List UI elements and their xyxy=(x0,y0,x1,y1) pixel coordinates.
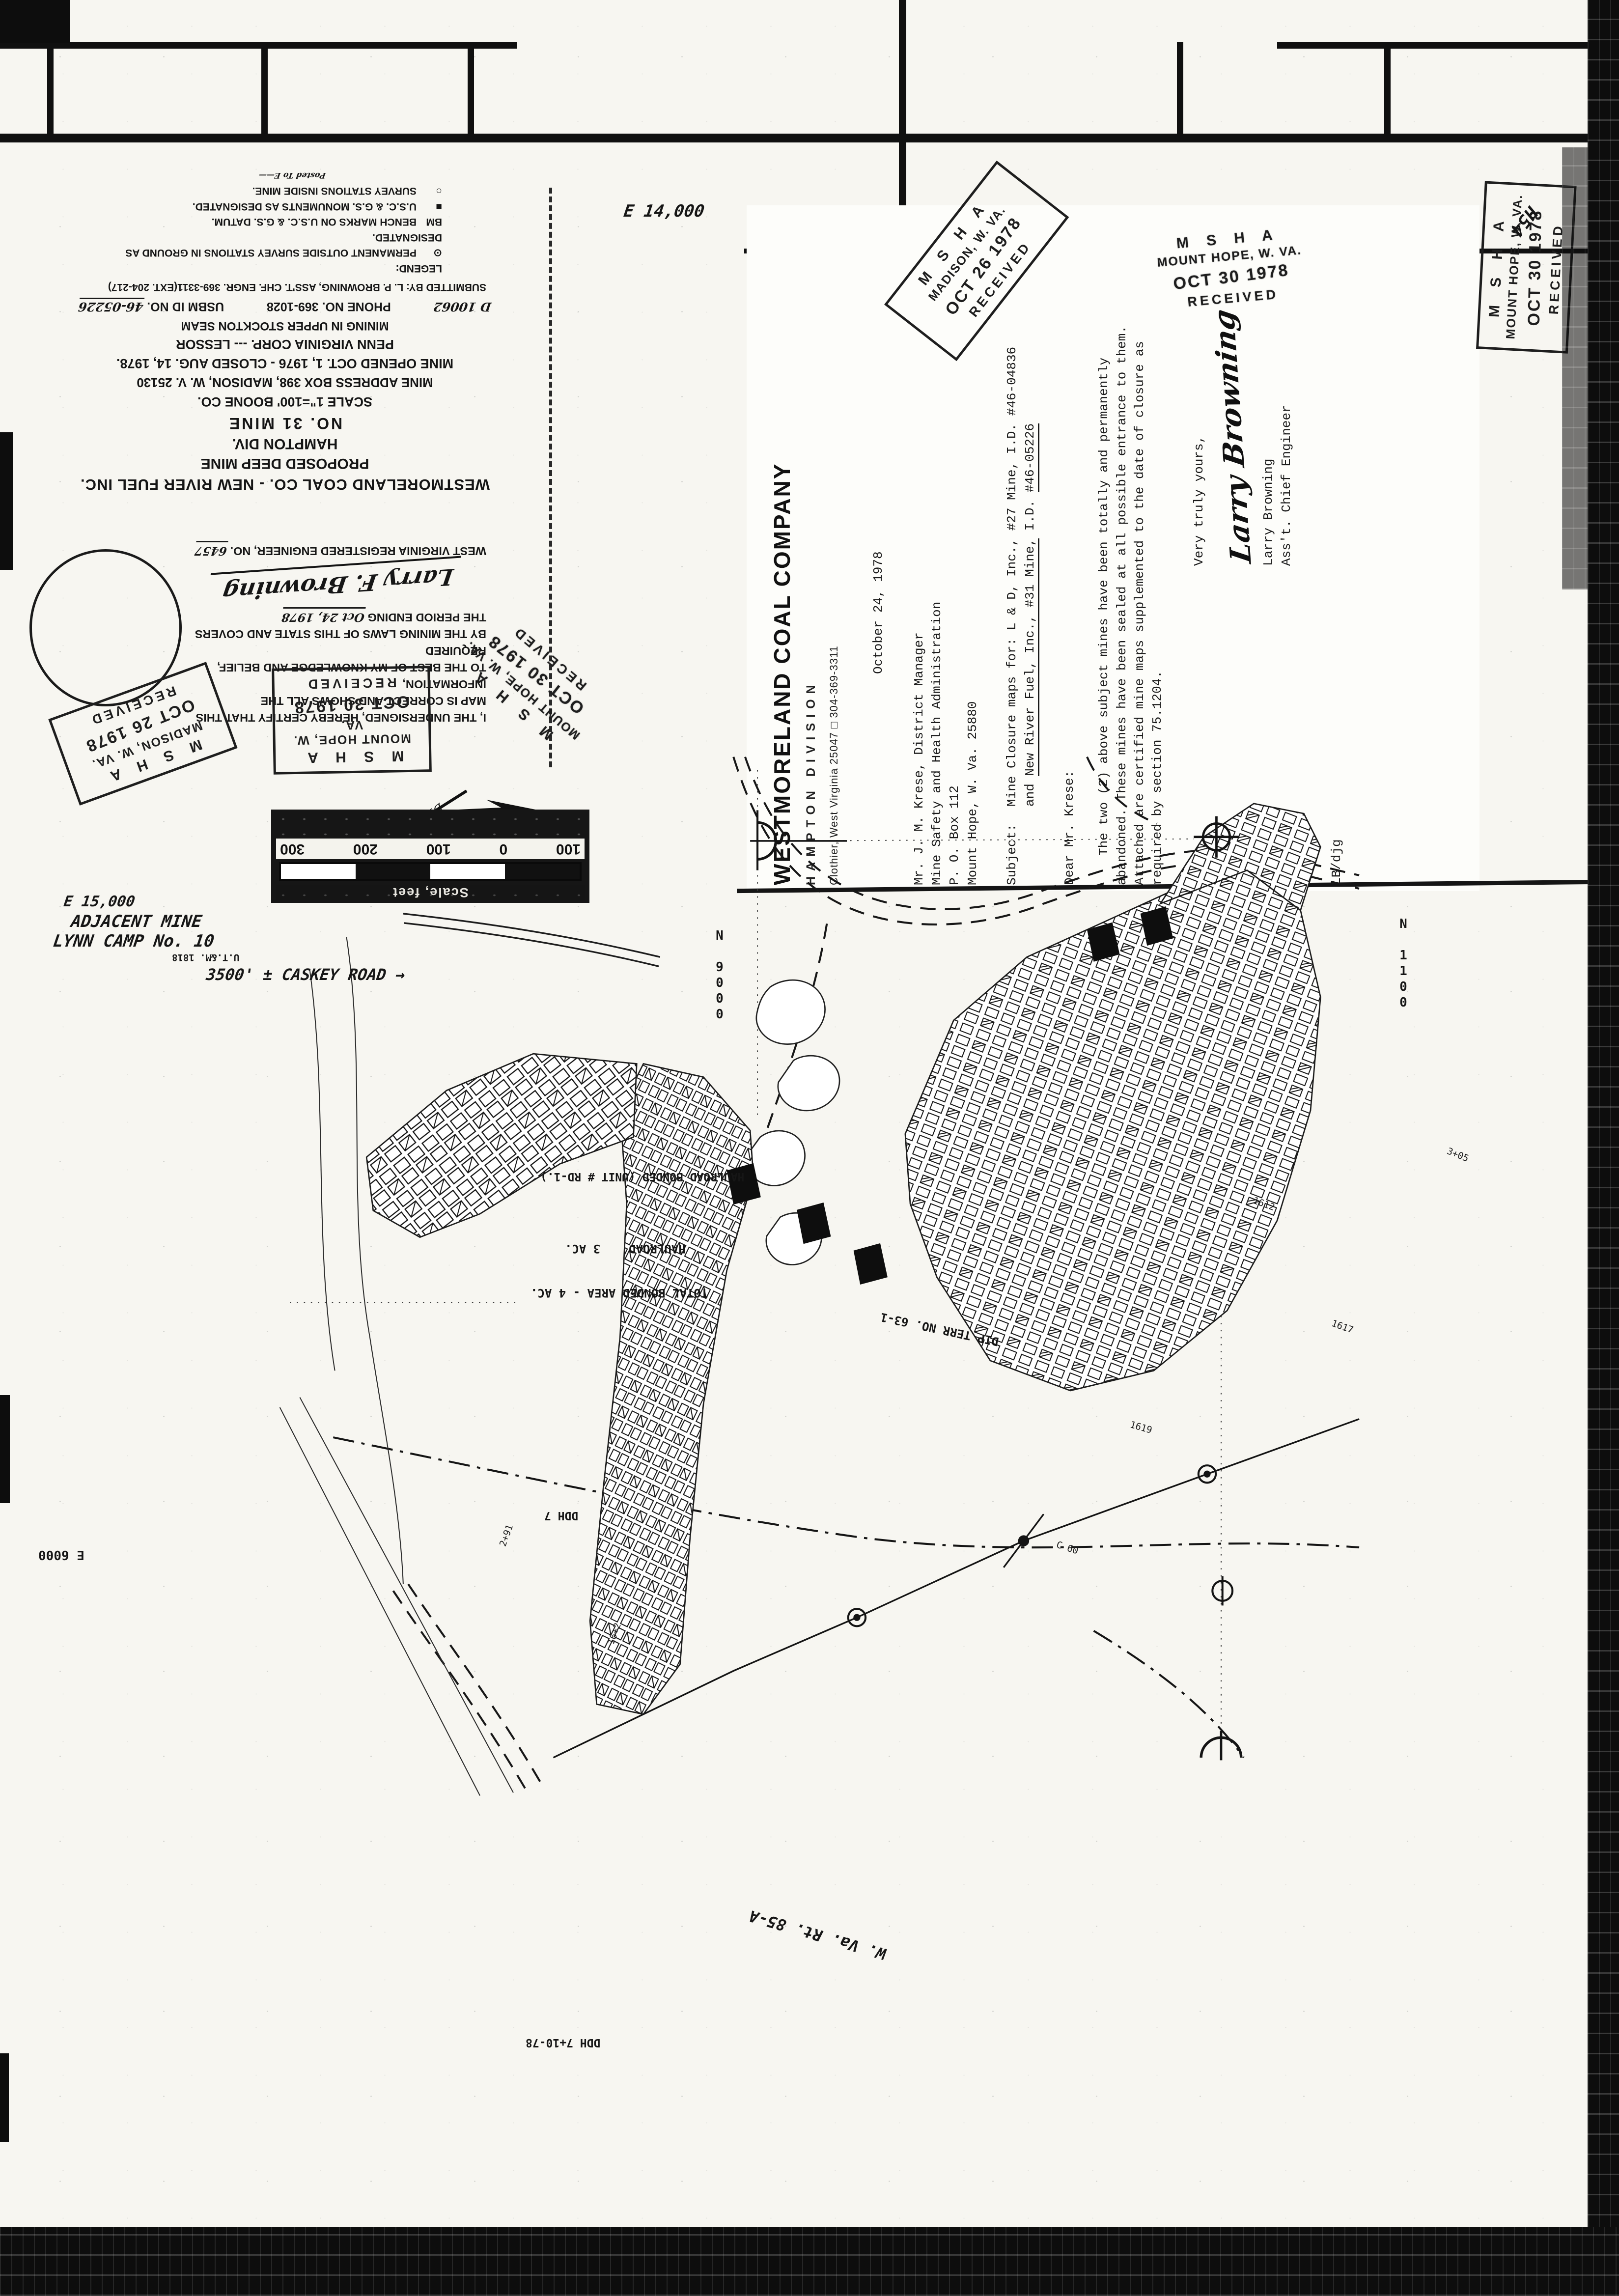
legend-symbol-permanent-station-icon: ⊙ xyxy=(417,245,442,261)
scan-edge-right-shadow xyxy=(1562,147,1588,589)
underlined-mine-id: #46-05226 xyxy=(1023,423,1039,492)
map-title-block: WESTMORELAND COAL CO. - NEW RIVER FUEL I… xyxy=(69,188,501,493)
signature-script: Larry Browning xyxy=(1204,307,1261,565)
grid-label-e6000: E 6000 xyxy=(38,1547,84,1562)
frame-line xyxy=(261,42,268,136)
scan-edge-left-mark xyxy=(0,1395,10,1503)
period-ending-date-handwritten: Oct 24, 1978 xyxy=(280,607,366,626)
permit-number-handwritten: D 10062 xyxy=(433,300,492,314)
usbm-id: USBM ID NO. 46-05226 xyxy=(79,298,224,314)
mine-workings-right xyxy=(905,804,1320,1391)
title-company: WESTMORELAND COAL CO. - NEW RIVER FUEL I… xyxy=(69,476,501,493)
haulroad-bonded-label: HAULROAD BONDED (UNIT # RD-1.) xyxy=(540,1170,744,1183)
frame-line xyxy=(468,42,474,136)
scan-edge-bottom-strip xyxy=(0,2227,1619,2296)
title-division: HAMPTON DIV. xyxy=(69,435,501,452)
title-dates: MINE OPENED OCT. 1, 1976 - CLOSED AUG. 1… xyxy=(69,356,501,371)
title-address: MINE ADDRESS BOX 398, MADISON, W. V. 251… xyxy=(69,375,501,390)
scan-edge-right-strip xyxy=(1588,0,1619,2296)
grid-annotation-e15000: E 15,000 xyxy=(63,893,136,910)
title-mine: NO. 31 MINE xyxy=(69,414,501,432)
mine-workings-left xyxy=(366,1054,754,1714)
map-legend: LEGEND: ⊙PERMANENT OUTSIDE SURVEY STATIO… xyxy=(69,183,501,276)
scan-edge-blob xyxy=(0,0,70,43)
legend-item: ○SURVEY STATIONS INSIDE MINE. xyxy=(69,183,442,199)
grid-label-n11000: N 1100 xyxy=(1396,917,1411,1011)
legend-item: ⊙PERMANENT OUTSIDE SURVEY STATIONS IN GR… xyxy=(69,230,442,261)
road-lines xyxy=(403,914,660,966)
title-id-row: D 10062 PHONE NO. 369-1028 USBM ID NO. 4… xyxy=(69,298,501,314)
frame-line xyxy=(1177,42,1183,136)
legend-symbol-inside-station-icon: ○ xyxy=(417,183,442,199)
title-seam: MINING IN UPPER STOCKTON SEAM xyxy=(69,319,501,333)
scan-edge-left-mark xyxy=(0,2053,9,2142)
phone-number: PHONE NO. 369-1028 xyxy=(267,299,391,313)
utem-label: U.T.&M. 1818 xyxy=(172,952,239,963)
usbm-id-number: 46-05226 xyxy=(78,298,145,314)
boundary-dash-dot xyxy=(333,1437,1359,1758)
legend-item: ■U.S.C. & G.S. MONUMENTS AS DESIGNATED. xyxy=(69,199,442,215)
ddh-label-b: DDH 7+10-78 xyxy=(526,2036,600,2049)
total-bonded-label: TOTAL BONDED AREA - 4 AC. xyxy=(530,1286,708,1300)
engineer-signature: Larry F. Browning xyxy=(205,556,461,610)
frame-line xyxy=(1384,42,1391,136)
scan-edge-left-mark xyxy=(0,432,13,570)
legend-symbol-benchmark-icon: BM xyxy=(417,214,442,230)
posted-annotation: Posted To E—— xyxy=(244,171,327,180)
contour-lines xyxy=(280,937,513,1795)
submitted-by-line: SUBMITTED BY: L. P. BROWNING, ASS'T. CHF… xyxy=(69,281,501,293)
frame-line xyxy=(0,42,517,49)
adjacent-mine-annotation: ADJACENT MINE LYNN CAMP No. 10 xyxy=(44,912,226,951)
frame-line xyxy=(1277,42,1619,49)
legend-title: LEGEND: xyxy=(69,261,442,277)
letter-date: October 24, 1978 xyxy=(869,202,887,674)
title-lessor: PENN VIRGINIA CORP. --- LESSOR xyxy=(69,336,501,352)
grid-annotation-e14000: E 14,000 xyxy=(622,201,705,221)
legend-item: BMBENCH MARKS ON U.S.C. & G.S. DATUM. xyxy=(69,214,442,230)
title-scale: SCALE 1"=100' BOONE CO. xyxy=(69,394,501,409)
haulroad-label: HAULROAD 3 AC. xyxy=(565,1242,686,1256)
legend-symbol-monument-icon: ■ xyxy=(417,199,442,215)
engineer-registration: WEST VIRGINIA REGISTERED ENGINEER, NO. 6… xyxy=(194,541,486,560)
ddh-label-a: DDH 7 xyxy=(544,1509,578,1522)
scanned-mine-map-document: WESTMORELAND COAL COMPANY HAMPTON DIVISI… xyxy=(0,0,1619,2296)
grid-label-n9000: N 9000 xyxy=(712,928,727,1023)
frame-line xyxy=(0,134,1619,142)
cert-line: THE PERIOD ENDING Oct 24, 1978 xyxy=(194,607,486,626)
caskey-road-annotation: 3500' ± CASKEY ROAD → xyxy=(205,965,406,984)
title-type: PROPOSED DEEP MINE xyxy=(69,455,501,472)
engineer-number-handwritten: 6457 xyxy=(194,541,228,560)
cert-line: BY THE MINING LAWS OF THIS STATE AND COV… xyxy=(194,626,486,643)
